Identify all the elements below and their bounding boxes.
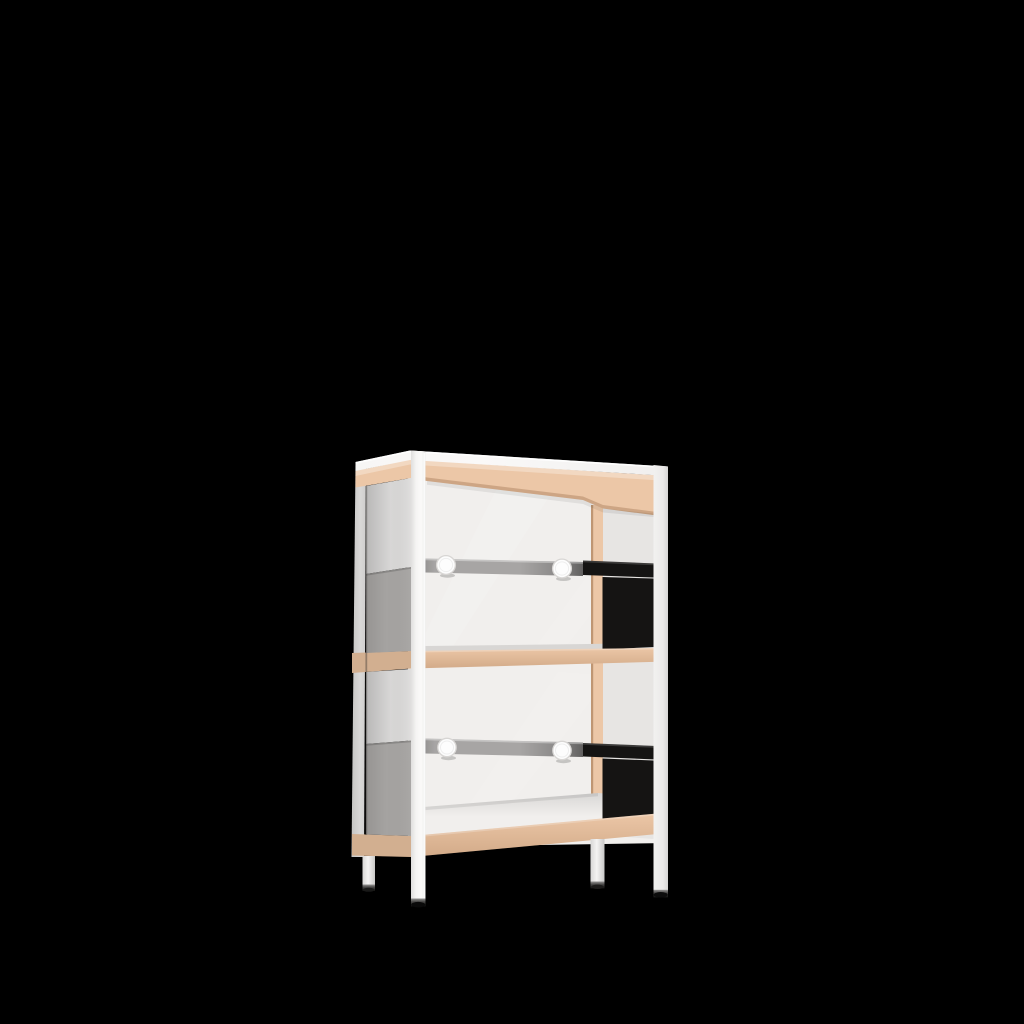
level-1-left-grey-panel-shading — [366, 567, 411, 653]
front-left-post — [411, 451, 426, 907]
level-1-left-clear-panel-shading — [366, 478, 411, 574]
front-left-foot-tip — [411, 902, 425, 908]
level-2-left-grey-panel-shading — [366, 741, 411, 837]
level-2-left-clear-panel-shading — [366, 669, 411, 744]
level-1-black-side-panel — [603, 577, 654, 650]
rear-right-leg — [591, 839, 605, 889]
front-right-foot-tip — [654, 892, 668, 898]
left-side-panel-rear-gap-shadow — [365, 486, 367, 835]
rear-right-foot-tip — [591, 885, 603, 889]
level-2-black-side-panel — [603, 759, 654, 821]
front-right-post — [654, 465, 669, 898]
front-left-post-edge-highlight — [424, 453, 426, 902]
product-render-canvas — [0, 0, 1024, 1024]
shelf-unit — [352, 451, 669, 908]
back-left-foot-tip — [363, 888, 375, 892]
rear-right-wood-post-edge-shadow — [591, 505, 593, 834]
bottom-shelf-band-side-shading — [352, 834, 411, 857]
